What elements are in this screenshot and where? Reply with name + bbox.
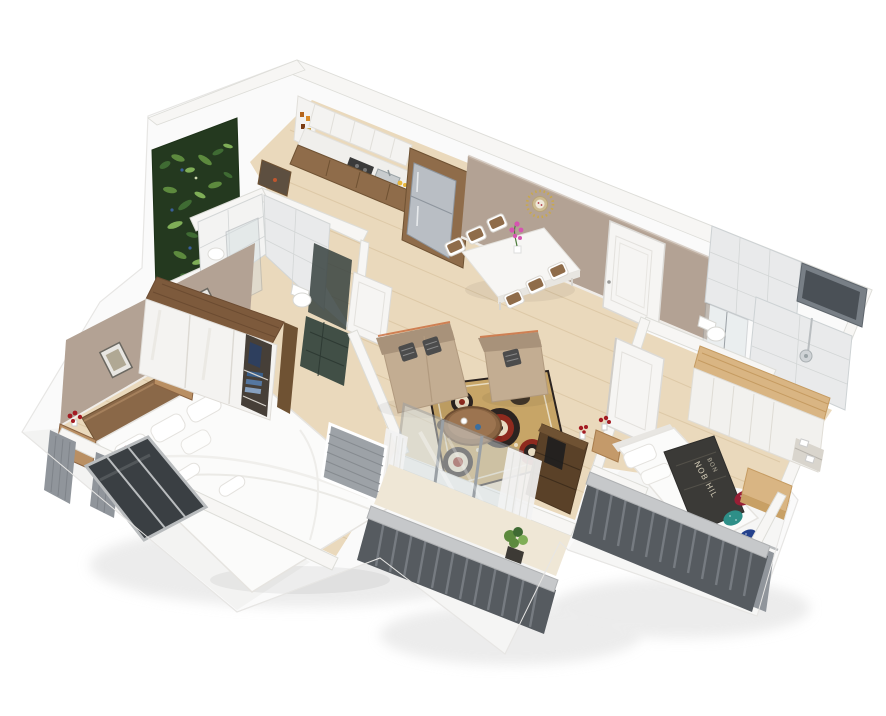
apartment-3d-floorplan: NOB HIL BON (0, 0, 886, 716)
floorplan-render: NOB HIL BON (0, 0, 886, 716)
bath1-wall-basin (208, 248, 224, 260)
bath1-toilet (293, 293, 311, 307)
door-handle (607, 280, 611, 284)
bath2-toilet (707, 327, 725, 341)
